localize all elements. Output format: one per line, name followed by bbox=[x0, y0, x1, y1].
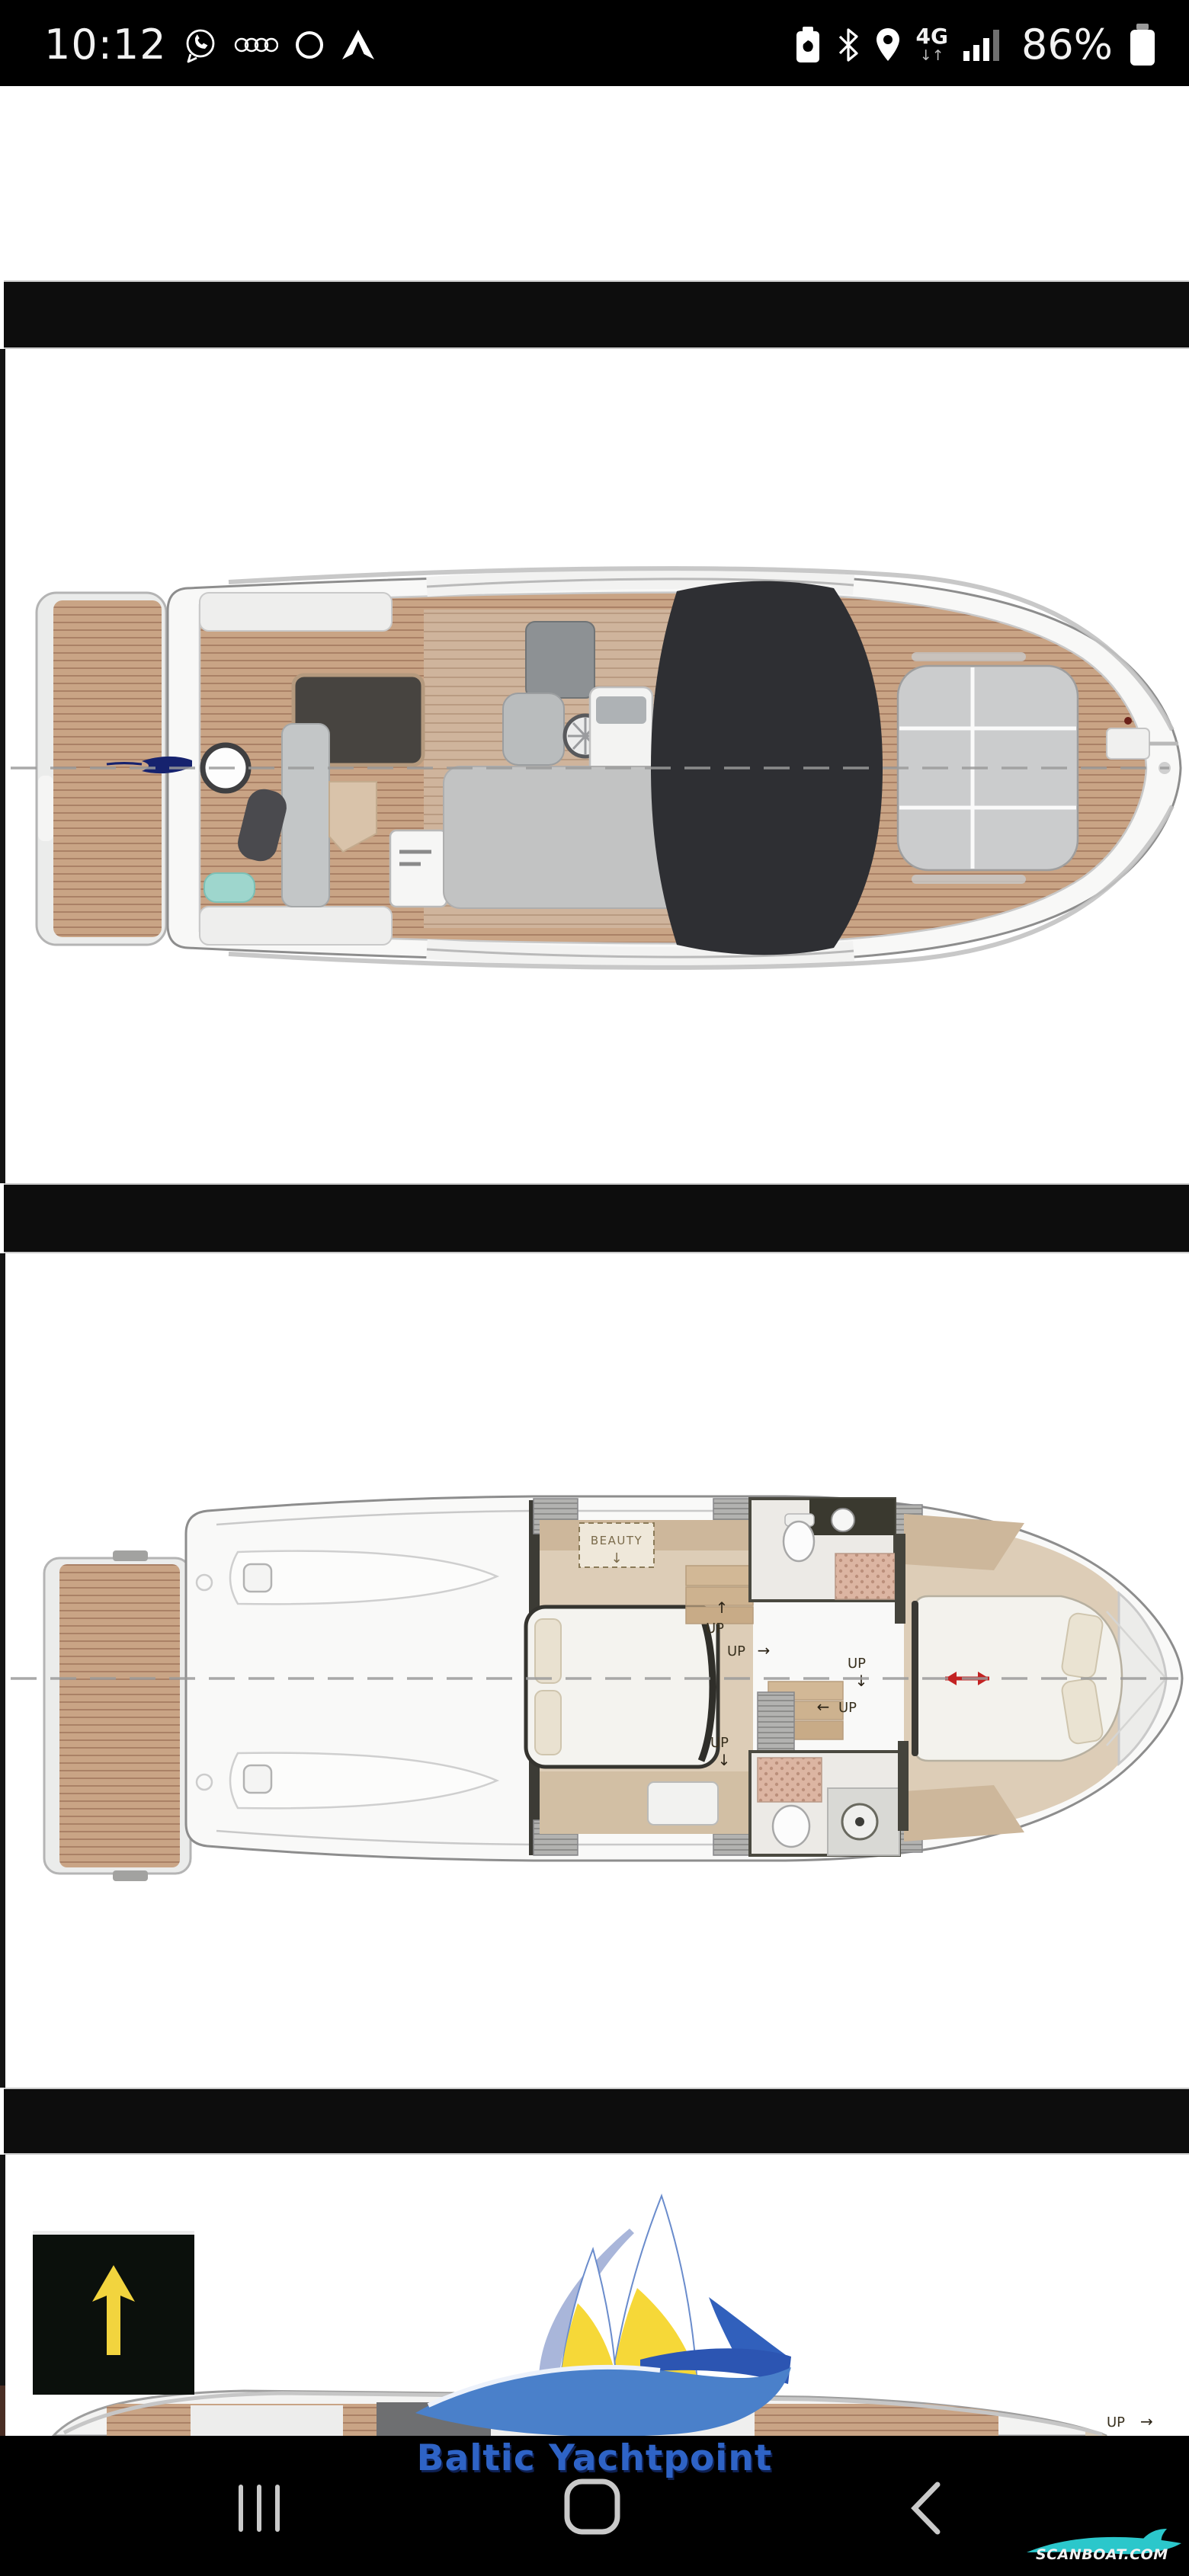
recents-button[interactable] bbox=[239, 2485, 280, 2532]
fly-up-label: UP bbox=[1107, 2414, 1125, 2430]
beauty-label: BEAUTY bbox=[591, 1534, 643, 1547]
up-label-2: UP bbox=[727, 1643, 745, 1659]
deck-plan-boat bbox=[11, 568, 1181, 968]
status-bar-left: 10:12 bbox=[44, 21, 376, 69]
image-separator-3 bbox=[4, 2088, 1189, 2155]
status-bar: 10:12 bbox=[0, 0, 1189, 86]
cabin-plan-boat: BEAUTY ↓ ↑ UP UP → UP ↓ ← UP UP ↓ bbox=[11, 1496, 1182, 1881]
audi-rings-icon bbox=[234, 34, 278, 56]
network-type: 4G bbox=[916, 26, 948, 47]
image-separator-1 bbox=[4, 280, 1189, 349]
whatsapp-icon bbox=[182, 27, 219, 63]
signal-strength-icon bbox=[963, 28, 1003, 62]
up-arrow-4: ← bbox=[817, 1698, 830, 1716]
circle-notification-icon bbox=[293, 29, 325, 61]
up-arrow-icon bbox=[33, 2235, 194, 2395]
nav-icons bbox=[0, 2436, 1189, 2576]
deck-plan-image[interactable] bbox=[0, 349, 1189, 1183]
scanboat-text: SCANBOAT.COM bbox=[1036, 2546, 1168, 2563]
logo-wave bbox=[415, 2366, 791, 2436]
up-arrow-3: ↓ bbox=[855, 1672, 868, 1690]
location-icon bbox=[875, 27, 901, 62]
home-button[interactable] bbox=[567, 2482, 617, 2532]
battery-icon bbox=[1128, 24, 1157, 66]
up-label-4: UP bbox=[838, 1700, 857, 1716]
image-separator-2 bbox=[4, 1183, 1189, 1253]
phone-screen: 10:12 bbox=[0, 0, 1189, 2576]
scanboat-watermark: SCANBOAT.COM bbox=[1025, 2526, 1185, 2574]
cabin-plan-image[interactable]: BEAUTY ↓ ↑ UP UP → UP ↓ ← UP UP ↓ bbox=[0, 1253, 1189, 2088]
up-arrow-2: → bbox=[758, 1641, 771, 1659]
battery-percent: 86% bbox=[1021, 21, 1113, 69]
status-bar-right: 4G ↓↑ 86% bbox=[794, 21, 1158, 69]
swim-platform bbox=[59, 1564, 180, 1867]
salon-table bbox=[526, 622, 594, 698]
up-label-1: UP bbox=[706, 1621, 724, 1637]
up-arrow-5: ↓ bbox=[718, 1751, 731, 1769]
up-arrow-1: ↑ bbox=[716, 1598, 729, 1617]
baltic-yachtpoint-logo bbox=[373, 2168, 846, 2436]
up-label-5: UP bbox=[710, 1735, 729, 1751]
scroll-to-top-button[interactable] bbox=[33, 2235, 194, 2395]
bluetooth-icon bbox=[837, 27, 860, 62]
up-label-3: UP bbox=[848, 1656, 866, 1672]
adjacent-image-edge-3 bbox=[0, 2155, 5, 2386]
battery-saver-icon bbox=[794, 27, 822, 63]
android-nav-bar: Baltic Yachtpoint bbox=[0, 2436, 1189, 2576]
back-button[interactable] bbox=[915, 2485, 937, 2532]
fly-up-arrow: → bbox=[1140, 2412, 1153, 2430]
clock: 10:12 bbox=[44, 21, 167, 69]
android-auto-icon bbox=[341, 29, 376, 61]
mobile-data-indicator: 4G ↓↑ bbox=[916, 26, 948, 63]
beauty-arrow: ↓ bbox=[611, 1550, 622, 1566]
network-arrows: ↓↑ bbox=[920, 49, 944, 63]
